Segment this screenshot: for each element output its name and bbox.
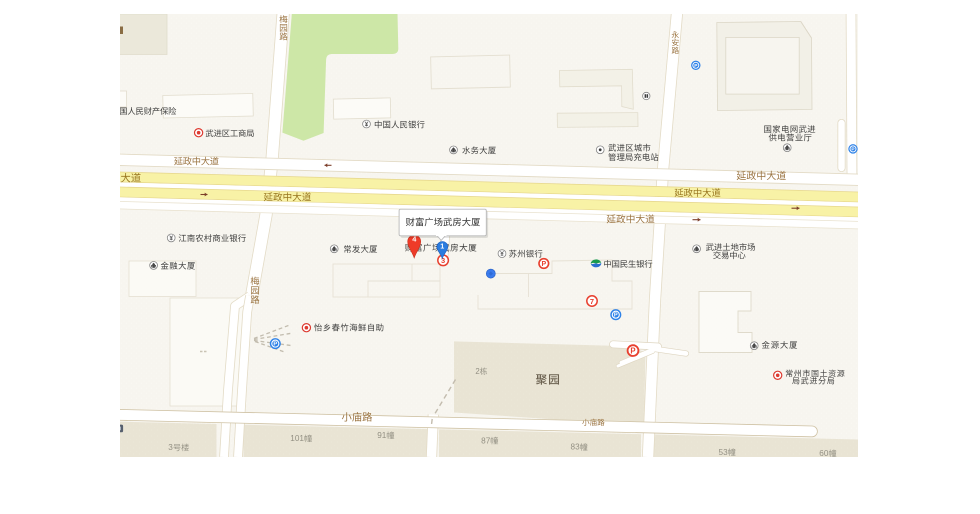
svg-text:3: 3 <box>575 443 580 452</box>
svg-text:7: 7 <box>486 436 491 445</box>
svg-text:1: 1 <box>299 434 304 443</box>
svg-text:P: P <box>614 313 618 319</box>
svg-text:3: 3 <box>168 443 173 452</box>
svg-text:P: P <box>630 346 635 355</box>
svg-text:3: 3 <box>723 448 728 457</box>
svg-text:0: 0 <box>824 449 829 458</box>
svg-text:2: 2 <box>475 367 479 376</box>
svg-text:P: P <box>541 261 546 268</box>
svg-text:P: P <box>273 342 277 348</box>
svg-text:1: 1 <box>382 431 387 440</box>
svg-text:7: 7 <box>590 297 594 306</box>
svg-text:1: 1 <box>440 241 444 250</box>
